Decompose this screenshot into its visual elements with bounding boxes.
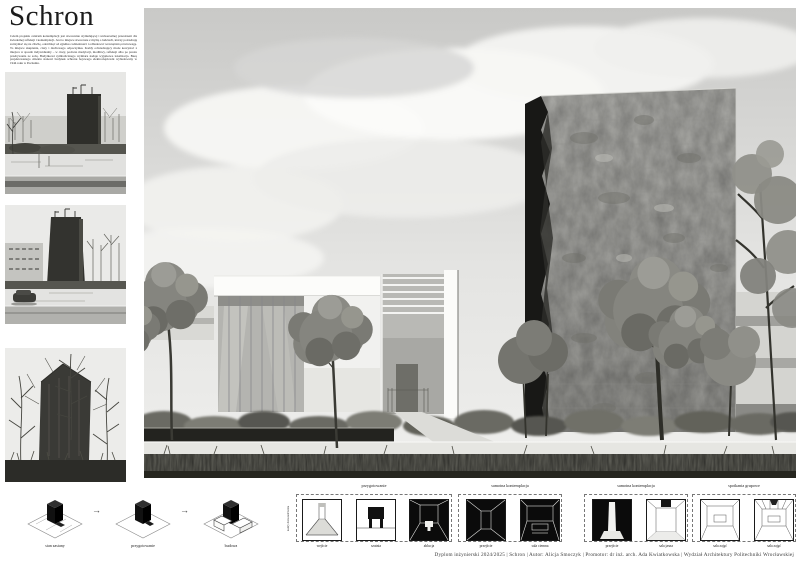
sequence-cell-label: szatnia	[356, 544, 396, 548]
sequence-group-title: przygotowanie	[296, 483, 452, 488]
sequence-cell-label: ablucja	[409, 544, 449, 548]
diagram-sala-ciemna	[520, 499, 560, 541]
sequence-cell	[356, 494, 396, 541]
sequence-cell-label: przejście	[466, 544, 506, 548]
diagram-przejscie-ciemne	[466, 499, 506, 541]
footer-credit: Dyplom inżynierski 2024/2025 | Schron | …	[0, 552, 794, 558]
diagram-sala-zajec-2	[754, 499, 794, 541]
process-arrow-2: →	[180, 506, 189, 515]
process-step-label: stan zastany	[26, 543, 84, 548]
sequence-cell-label: sala zajęć	[700, 544, 740, 548]
isometric-construction	[202, 494, 260, 540]
diagram-przejscie-kolumna	[592, 499, 632, 541]
project-description: Celem projektu centrum kontemplacji jest…	[10, 35, 137, 66]
sequence-cell	[409, 494, 449, 541]
photo-3-graphic	[5, 348, 126, 482]
process-diagram-construction	[202, 494, 260, 545]
diagram-szatnia	[356, 499, 396, 541]
site-photo-winter-street	[5, 72, 126, 194]
process-step-label: przygotowanie	[114, 543, 172, 548]
render-graphic	[144, 8, 796, 478]
process-arrow-1: →	[92, 506, 101, 515]
photo-2-graphic	[5, 205, 126, 324]
diagram-sala-zajec-1	[700, 499, 740, 541]
page-title: Schron	[9, 2, 94, 31]
sequence-cell	[700, 494, 740, 541]
process-step-label: budowa	[202, 543, 260, 548]
sequence-group-title: samotna kontemplacja	[458, 483, 562, 488]
sequence-group-title: spotkania grupowe	[692, 483, 796, 488]
sequence-side-label: kadry doświadczenia	[287, 495, 291, 541]
isometric-preparation	[114, 494, 172, 540]
process-diagram-existing	[26, 494, 84, 545]
photo-1-graphic	[5, 72, 126, 194]
sequence-cell-label: sala zajęć	[754, 544, 794, 548]
main-visualization	[144, 8, 796, 478]
sequence-cell-label: wejście	[302, 544, 342, 548]
sequence-cell	[754, 494, 794, 541]
process-diagram-preparation	[114, 494, 172, 545]
isometric-existing-state	[26, 494, 84, 540]
sequence-group-title: samotna kontemplacja	[584, 483, 688, 488]
diagram-wejscie	[302, 499, 342, 541]
sequence-cell-label: sala jasna	[646, 544, 686, 548]
site-photo-winter-building	[5, 205, 126, 324]
presentation-board: Schron Celem projektu centrum kontemplac…	[0, 0, 800, 564]
diagram-sala-jasna	[646, 499, 686, 541]
sequence-cell	[302, 494, 342, 541]
sequence-cell-label: przejście	[592, 544, 632, 548]
sequence-cell	[466, 494, 506, 541]
diagram-ablucja	[409, 499, 449, 541]
sequence-cell	[520, 494, 560, 541]
site-photo-tower-trees	[5, 348, 126, 482]
sequence-cell	[646, 494, 686, 541]
sequence-cell-label: sala ciemna	[520, 544, 560, 548]
sequence-cell	[592, 494, 632, 541]
